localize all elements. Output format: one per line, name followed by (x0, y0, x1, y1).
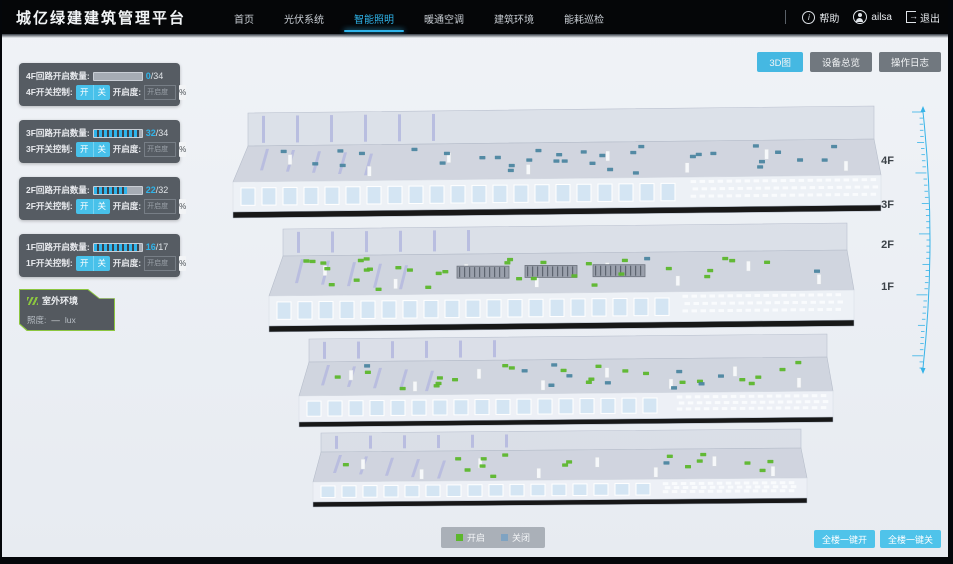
light-dot (707, 269, 713, 272)
light-dot (671, 386, 677, 389)
light-dot (411, 148, 417, 151)
light-dot (595, 365, 601, 368)
light-dot (365, 371, 371, 374)
light-dot (364, 257, 370, 260)
light-dot (588, 377, 594, 380)
light-dot (516, 277, 522, 280)
light-dot (622, 369, 628, 372)
light-dot (481, 457, 487, 460)
light-dot (749, 382, 755, 385)
building-floor-2f[interactable] (299, 334, 833, 427)
main-menu: 首页 光伏系统 智能照明 暖通空调 建筑环境 能耗巡检 (232, 1, 606, 34)
light-dot (644, 257, 650, 260)
light-dot (607, 168, 613, 171)
navbar-right: i 帮助 ailsa 退出 (785, 0, 940, 34)
legend-off-label: 关闭 (512, 531, 530, 544)
light-dot (320, 261, 326, 264)
light-dot (329, 283, 335, 286)
light-dot (335, 375, 341, 378)
light-dot (744, 461, 750, 464)
light-dot (444, 152, 450, 155)
help-icon: i (802, 11, 815, 24)
light-dot (685, 465, 691, 468)
light-dot (814, 269, 820, 272)
menu-item-building-env[interactable]: 建筑环境 (492, 1, 536, 34)
light-dot (395, 266, 401, 269)
light-dot (442, 270, 448, 273)
navbar-divider (785, 10, 786, 24)
menu-item-home[interactable]: 首页 (232, 1, 256, 34)
light-dot (531, 277, 537, 280)
light-dot (831, 145, 837, 148)
light-dot (755, 376, 761, 379)
light-dot (436, 272, 442, 275)
light-dot (797, 158, 803, 161)
light-dot (729, 259, 735, 262)
app-title: 城亿绿建建筑管理平台 (16, 7, 186, 28)
light-dot (522, 369, 528, 372)
light-dot (376, 288, 382, 291)
floor-marker-1f[interactable]: 1F (881, 281, 894, 293)
light-dot (509, 164, 515, 167)
light-dot (551, 363, 557, 366)
light-dot (566, 460, 572, 463)
light-dot (586, 262, 592, 265)
light-dot (760, 469, 766, 472)
light-dot (676, 370, 682, 373)
bulk-control-buttons: 全楼一键开 全楼一键关 (814, 530, 941, 548)
light-dot (455, 457, 461, 460)
light-dot (699, 382, 705, 385)
light-dot (605, 381, 611, 384)
light-dot (452, 378, 458, 381)
menu-item-smart-lighting[interactable]: 智能照明 (352, 1, 396, 34)
light-dot (556, 153, 562, 156)
all-off-button[interactable]: 全楼一键关 (880, 530, 941, 548)
light-dot (696, 153, 702, 156)
device-overview-button[interactable]: 设备总览 (810, 52, 872, 72)
menu-item-hvac[interactable]: 暖通空调 (422, 1, 466, 34)
username-label: ailsa (871, 12, 892, 23)
light-dot (440, 161, 446, 164)
light-dot (495, 156, 501, 159)
light-dot (753, 144, 759, 147)
light-dot (589, 162, 595, 165)
building-3d-view[interactable] (2, 0, 953, 557)
light-dot (764, 261, 770, 264)
light-dot (310, 260, 316, 263)
legend-on-label: 开启 (467, 531, 485, 544)
user-avatar-icon (853, 10, 867, 24)
light-dot (548, 384, 554, 387)
light-dot (337, 149, 343, 152)
status-legend: 开启 关闭 (441, 527, 545, 548)
light-dot (509, 366, 515, 369)
menu-item-pv-system[interactable]: 光伏系统 (282, 1, 326, 34)
light-dot (666, 267, 672, 270)
floor-marker-3f[interactable]: 3F (881, 199, 894, 211)
help-label: 帮助 (819, 10, 839, 25)
legend-on-swatch (456, 534, 463, 541)
view-switcher: 3D图 设备总览 操作日志 (757, 52, 941, 72)
light-dot (490, 475, 496, 478)
light-dot (504, 261, 510, 264)
light-dot (425, 286, 431, 289)
light-dot (479, 156, 485, 159)
light-dot (571, 274, 577, 277)
light-dot (562, 159, 568, 162)
light-dot (526, 158, 532, 161)
operation-log-button[interactable]: 操作日志 (879, 52, 941, 72)
floor-scale-ruler (912, 106, 930, 374)
light-dot (700, 453, 706, 456)
light-dot (540, 261, 546, 264)
light-dot (757, 165, 763, 168)
light-dot (718, 374, 724, 377)
light-dot (795, 361, 801, 364)
light-dot (722, 257, 728, 260)
light-dot (359, 152, 365, 155)
light-dot (618, 272, 624, 275)
light-dot (480, 464, 486, 467)
light-dot (358, 259, 364, 262)
logout-label: 退出 (920, 10, 940, 25)
light-dot (343, 463, 349, 466)
light-dot (739, 378, 745, 381)
light-dot (638, 145, 644, 148)
light-dot (465, 468, 471, 471)
light-dot (407, 268, 413, 271)
light-dot (643, 372, 649, 375)
light-dot (581, 150, 587, 153)
light-dot (364, 268, 370, 271)
light-dot (324, 267, 330, 270)
light-dot (281, 150, 287, 153)
light-dot (667, 455, 673, 458)
all-on-button[interactable]: 全楼一键开 (814, 530, 875, 548)
app-window: 城亿绿建建筑管理平台 首页 光伏系统 智能照明 暖通空调 建筑环境 能耗巡检 i… (2, 0, 948, 557)
light-dot (822, 158, 828, 161)
user-menu[interactable]: ailsa (853, 10, 892, 24)
building-floor-4f[interactable] (233, 106, 881, 218)
light-dot (535, 149, 541, 152)
light-dot (592, 283, 598, 286)
light-dot (633, 171, 639, 174)
menu-item-energy-inspection[interactable]: 能耗巡检 (562, 1, 606, 34)
light-dot (437, 376, 443, 379)
light-dot (354, 278, 360, 281)
logout-link[interactable]: 退出 (906, 10, 940, 25)
light-dot (704, 275, 710, 278)
light-dot (502, 364, 508, 367)
light-dot (663, 461, 669, 464)
light-dot (553, 159, 559, 162)
light-dot (507, 258, 513, 261)
light-dot (710, 152, 716, 155)
logout-icon (906, 11, 916, 23)
light-dot (697, 459, 703, 462)
top-navbar: 城亿绿建建筑管理平台 首页 光伏系统 智能照明 暖通空调 建筑环境 能耗巡检 i… (2, 0, 948, 34)
light-dot (400, 387, 406, 390)
legend-off-swatch (501, 534, 508, 541)
light-dot (502, 453, 508, 456)
light-dot (303, 259, 309, 262)
floor-marker-4f[interactable]: 4F (881, 155, 894, 167)
light-dot (775, 151, 781, 154)
help-link[interactable]: i 帮助 (802, 10, 839, 25)
building-floor-1f[interactable] (313, 429, 807, 507)
building-floor-3f[interactable] (269, 223, 854, 332)
floor-marker-2f[interactable]: 2F (881, 239, 894, 251)
light-dot (364, 364, 370, 367)
light-dot (630, 151, 636, 154)
light-dot (561, 369, 567, 372)
light-dot (680, 381, 686, 384)
light-dot (312, 162, 318, 165)
light-dot (436, 382, 442, 385)
light-dot (508, 169, 514, 172)
light-dot (566, 374, 572, 377)
light-dot (622, 259, 628, 262)
view-3d-button[interactable]: 3D图 (757, 52, 803, 72)
light-dot (586, 381, 592, 384)
light-dot (690, 155, 696, 158)
light-dot (340, 164, 346, 167)
light-dot (767, 460, 773, 463)
light-dot (759, 160, 765, 163)
light-dot (779, 368, 785, 371)
light-dot (599, 154, 605, 157)
light-dot (562, 463, 568, 466)
